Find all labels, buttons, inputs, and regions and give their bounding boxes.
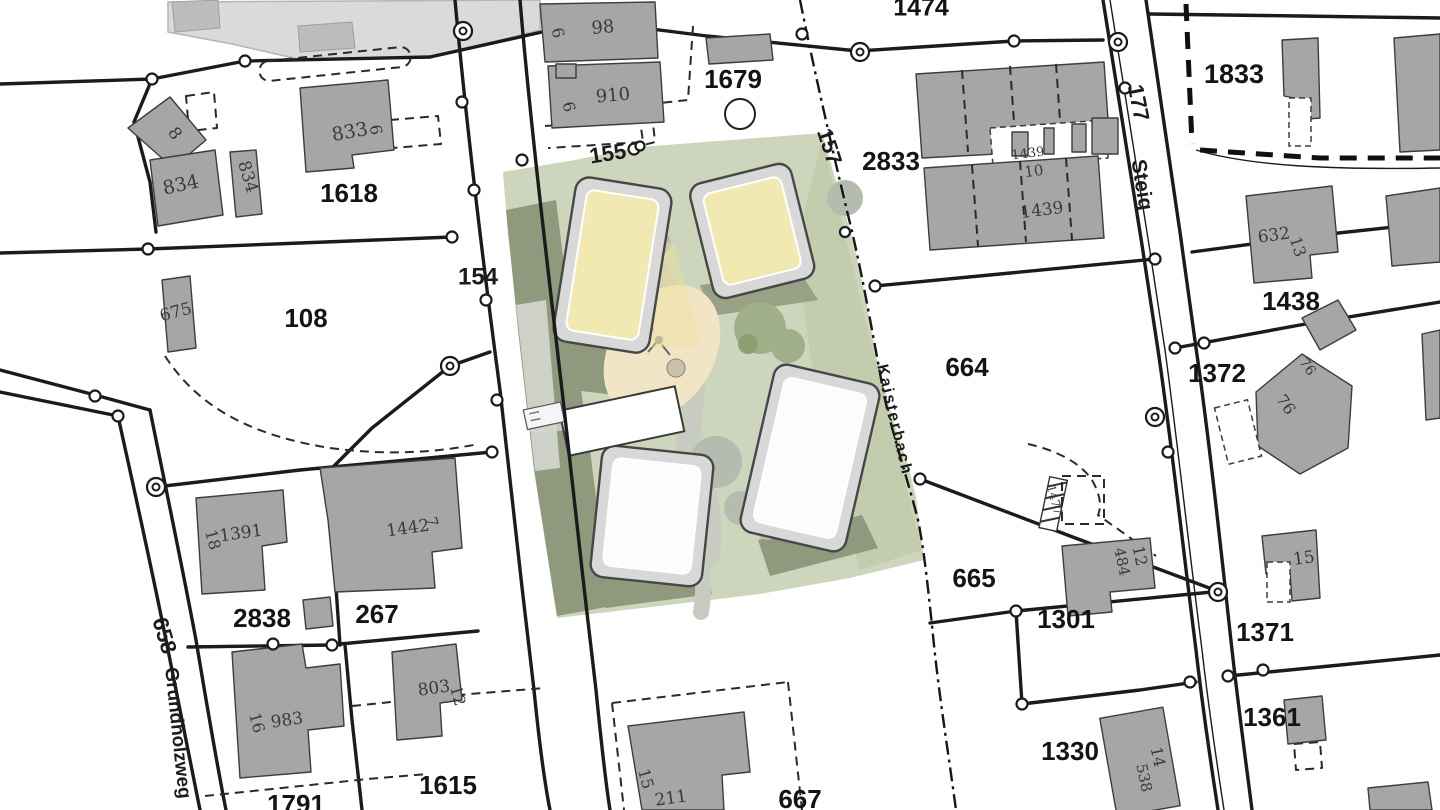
building-label-12: 12	[446, 683, 470, 708]
building-label-15: 15	[1292, 547, 1316, 570]
parcel-label-1833: 1833	[1204, 59, 1264, 89]
map-viewport: 1474167928331833161810814381372664665130…	[0, 0, 1440, 810]
street-label-grundholzweg: Grundholzweg	[160, 666, 195, 799]
building-label-10: 10	[1023, 161, 1044, 181]
parcel-label-1615: 1615	[419, 770, 477, 800]
parcel-label-1301: 1301	[1037, 604, 1095, 634]
parcel-label-108: 108	[284, 303, 327, 333]
street-label-steig: Steig	[1127, 158, 1158, 212]
parcel-label-1618: 1618	[320, 178, 378, 208]
parcel-label-665: 665	[952, 563, 995, 593]
building-label-211: 211	[653, 786, 688, 810]
new-building-sw	[589, 445, 714, 588]
parcel-label-1438: 1438	[1262, 286, 1320, 316]
parcel-label-664: 664	[945, 352, 989, 382]
pale-building-complex	[168, 0, 540, 60]
development-site	[503, 133, 924, 618]
parcel-label-1372: 1372	[1188, 358, 1246, 388]
parcel-label-2833: 2833	[862, 146, 920, 176]
circular-structure	[725, 99, 755, 129]
cadastral-map: 1474167928331833161810814381372664665130…	[0, 0, 1440, 810]
parcel-label-1371: 1371	[1236, 617, 1294, 647]
parcel-label-2838: 2838	[233, 603, 291, 633]
parcel-label-1330: 1330	[1041, 736, 1099, 766]
street-label-154: 154	[458, 263, 499, 290]
parcel-label-667: 667	[778, 784, 821, 810]
street-label-658: 658	[147, 614, 182, 656]
parcel-label-1474: 1474	[893, 0, 949, 22]
parcel-label-1361: 1361	[1243, 702, 1301, 732]
building-label-98: 98	[591, 16, 616, 39]
parcel-label-267: 267	[355, 599, 398, 629]
parcel-label-1791: 1791	[267, 789, 325, 810]
street-label-177: 177	[1123, 82, 1155, 123]
building-label-910: 910	[595, 84, 631, 108]
parcel-label-1679: 1679	[704, 64, 762, 94]
